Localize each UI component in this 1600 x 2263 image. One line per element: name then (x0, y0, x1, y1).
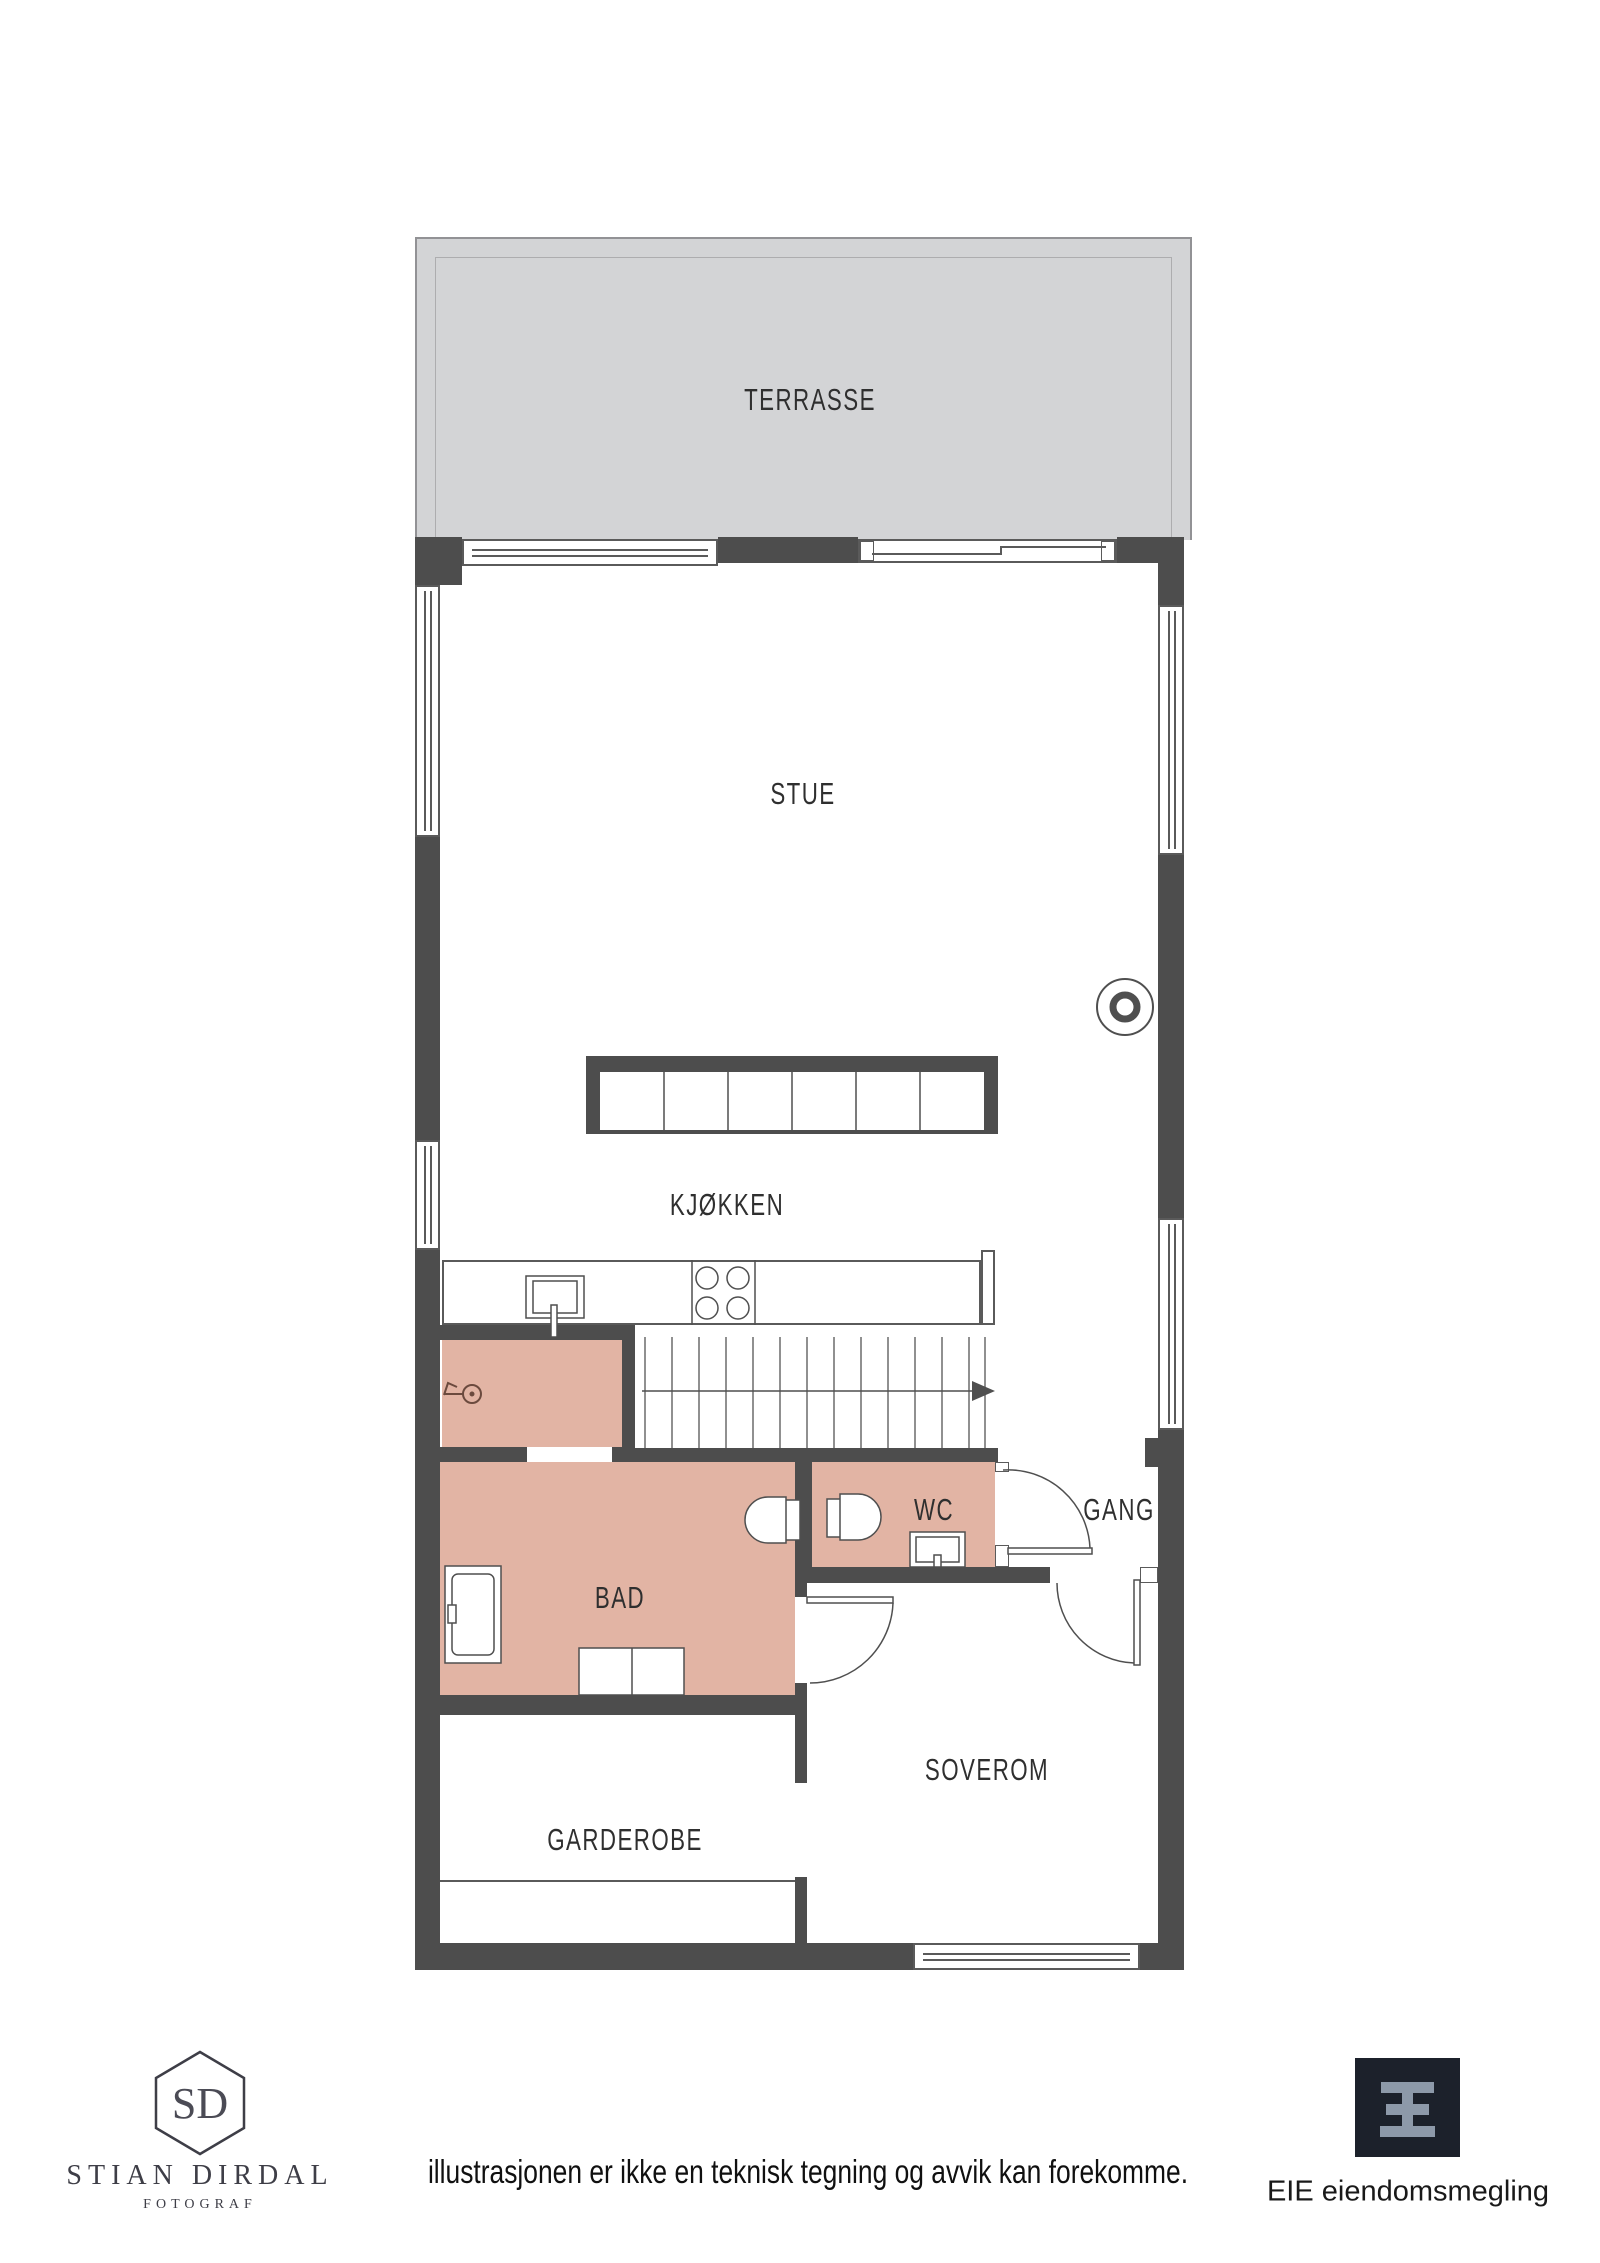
kitchen-island-icon (586, 1056, 998, 1134)
shower-icon (445, 1566, 501, 1663)
bathroom-door (807, 1597, 893, 1683)
toilet-icon (745, 1497, 800, 1543)
disclaimer-text: illustrasjonen er ikke en teknisk tegnin… (333, 2153, 1283, 2191)
room-label-soverom: SOVEROM (901, 1752, 1073, 1788)
room-label-gang: GANG (1069, 1492, 1168, 1528)
floor-plan-page: SD TERRASSE STUE KJØKKEN BAD WC GANG SOV… (0, 0, 1600, 2263)
photographer-name: STIAN DIRDAL (66, 2160, 333, 2192)
bedroom-door (1057, 1580, 1140, 1665)
bathroom-vanity-icon (579, 1648, 684, 1695)
room-label-wc: WC (906, 1492, 962, 1528)
room-label-bad: BAD (585, 1580, 655, 1616)
agency-name: EIE eiendomsmegling (1267, 2176, 1549, 2209)
water-outlet-icon (444, 1383, 481, 1403)
cooktop-icon (692, 1260, 755, 1325)
stairs (645, 1337, 985, 1448)
kitchen-sink-icon (526, 1276, 584, 1337)
fireplace-icon (1097, 979, 1153, 1035)
room-label-garderobe: GARDEROBE (517, 1822, 733, 1858)
eie-monogram-icon (1402, 2082, 1413, 2137)
agency-logo (1355, 2058, 1460, 2157)
room-label-stue: STUE (758, 776, 849, 812)
toilet-icon (827, 1494, 881, 1540)
photographer-initials: SD (172, 2079, 228, 2128)
photographer-logo: SD (156, 2052, 244, 2154)
room-label-terrasse: TERRASSE (718, 382, 901, 418)
fixtures-layer: SD (0, 0, 1600, 2263)
wash-basin-icon (910, 1532, 965, 1567)
room-label-kjokken: KJØKKEN (648, 1187, 807, 1223)
photographer-role: FOTOGRAF (143, 2197, 257, 2213)
